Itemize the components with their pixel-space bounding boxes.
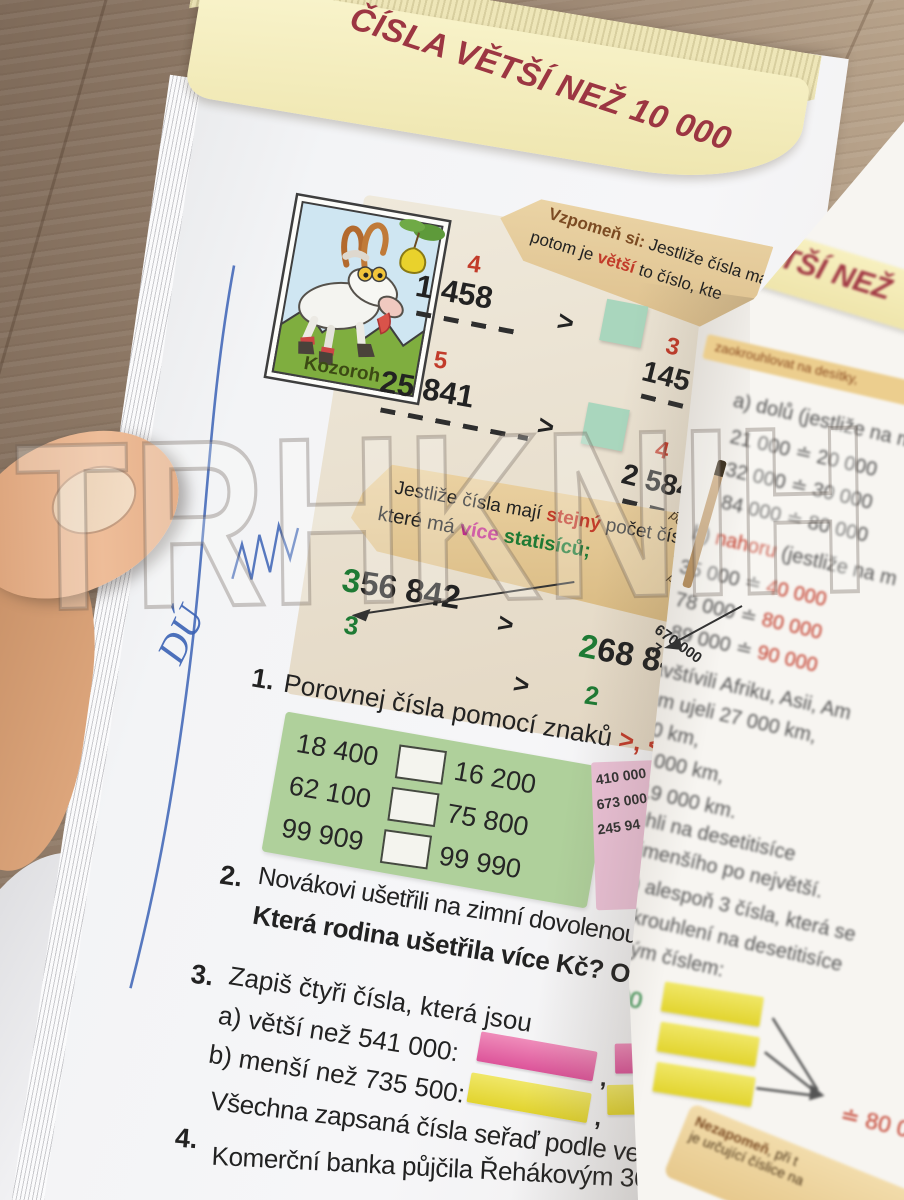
photo-scene: ČÍSLA VĚTŠÍ NEŽ 10 000	[0, 0, 904, 1200]
edge-pointer-arrow	[0, 0, 904, 1200]
